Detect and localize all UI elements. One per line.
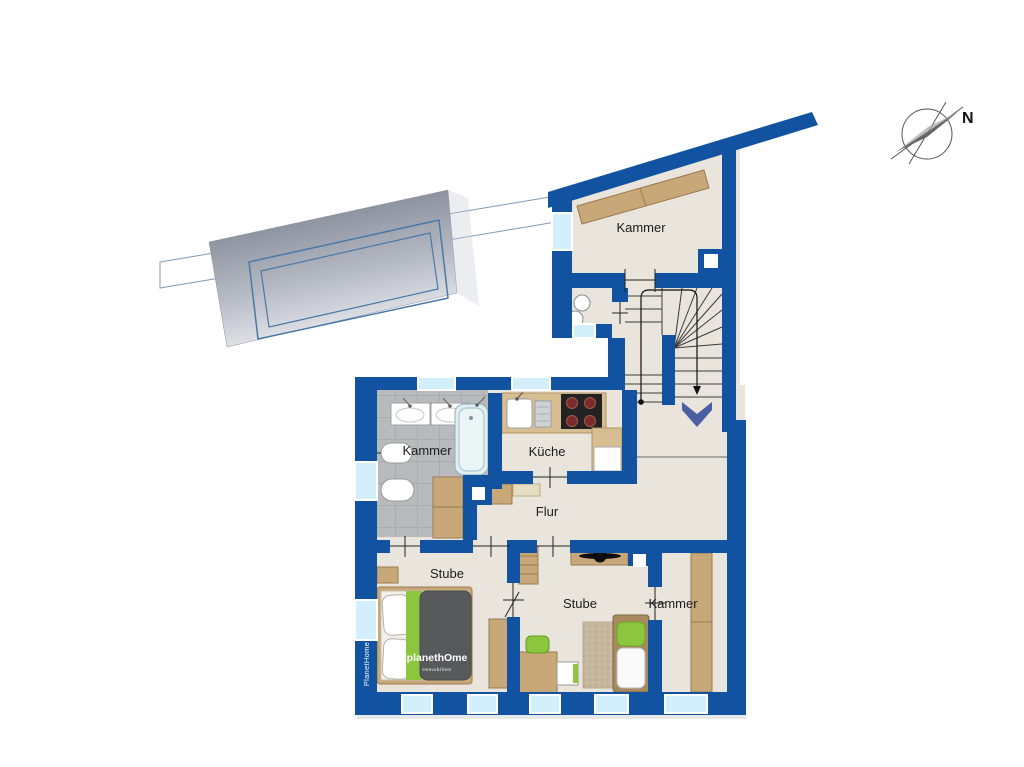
room-label-kammer-top: Kammer [616,220,666,235]
window [665,695,707,713]
wall-segment [567,471,637,484]
window [552,213,572,250]
wall-segment [655,273,700,288]
room-label-stube-west: Stube [430,566,464,581]
room-label-kueche: Küche [529,444,566,459]
wall-segment [622,390,637,471]
toilet [381,479,414,501]
room-label-bad-kammer: Kammer [402,443,452,458]
window [573,324,595,338]
window [402,695,432,713]
wall-segment [420,540,473,553]
bathtub [455,397,488,475]
window [355,600,377,640]
brand-logo: planethOme [407,652,468,664]
wall-segment [507,617,520,692]
kitchen-sink [507,399,532,428]
wall-segment [648,620,662,692]
window [418,377,455,390]
brand-logo-sub: Immobilien [422,667,451,673]
kitchen-counter [502,392,606,433]
kitchen-side-counter [592,428,622,471]
window [468,695,497,713]
window [595,695,628,713]
brand-watermark: PlanetHome [362,642,371,686]
compass-north-label: N [962,110,974,127]
room-label-kammer-ost: Kammer [648,596,698,611]
desk [519,652,557,693]
nightstand [557,662,578,685]
bathroom-cabinet [433,477,463,538]
wall-segment [572,273,625,288]
shaft-square [704,254,718,268]
roof-overlay [160,190,556,347]
wall-segment [727,420,746,715]
wall-segment [488,393,502,475]
round-fixture [574,295,590,311]
window [512,377,550,390]
room-label-flur: Flur [536,504,559,519]
rug [583,622,616,688]
floor-plan-drawing: N [0,0,1024,767]
wall-shadow [357,715,746,719]
wall-segment [355,377,625,390]
wall-segment [722,150,736,432]
exterior-notch [552,338,608,377]
single-bed [613,615,649,692]
shaft-square [472,487,485,500]
shaft-square [633,554,646,567]
room-label-stube-ost: Stube [563,596,597,611]
chair [526,636,549,653]
floor-plan-canvas: N [0,0,1024,767]
hall-shelf [513,484,540,496]
shelf [377,567,398,583]
wall-segment [612,288,628,302]
wall-segment [490,471,533,484]
window [530,695,560,713]
fridge [594,447,621,471]
window [355,462,377,500]
wall-segment [377,540,390,553]
compass-icon: N [891,102,974,164]
wardrobe [691,553,712,692]
stair-spine-wall [662,335,675,405]
wall-segment [648,540,662,587]
